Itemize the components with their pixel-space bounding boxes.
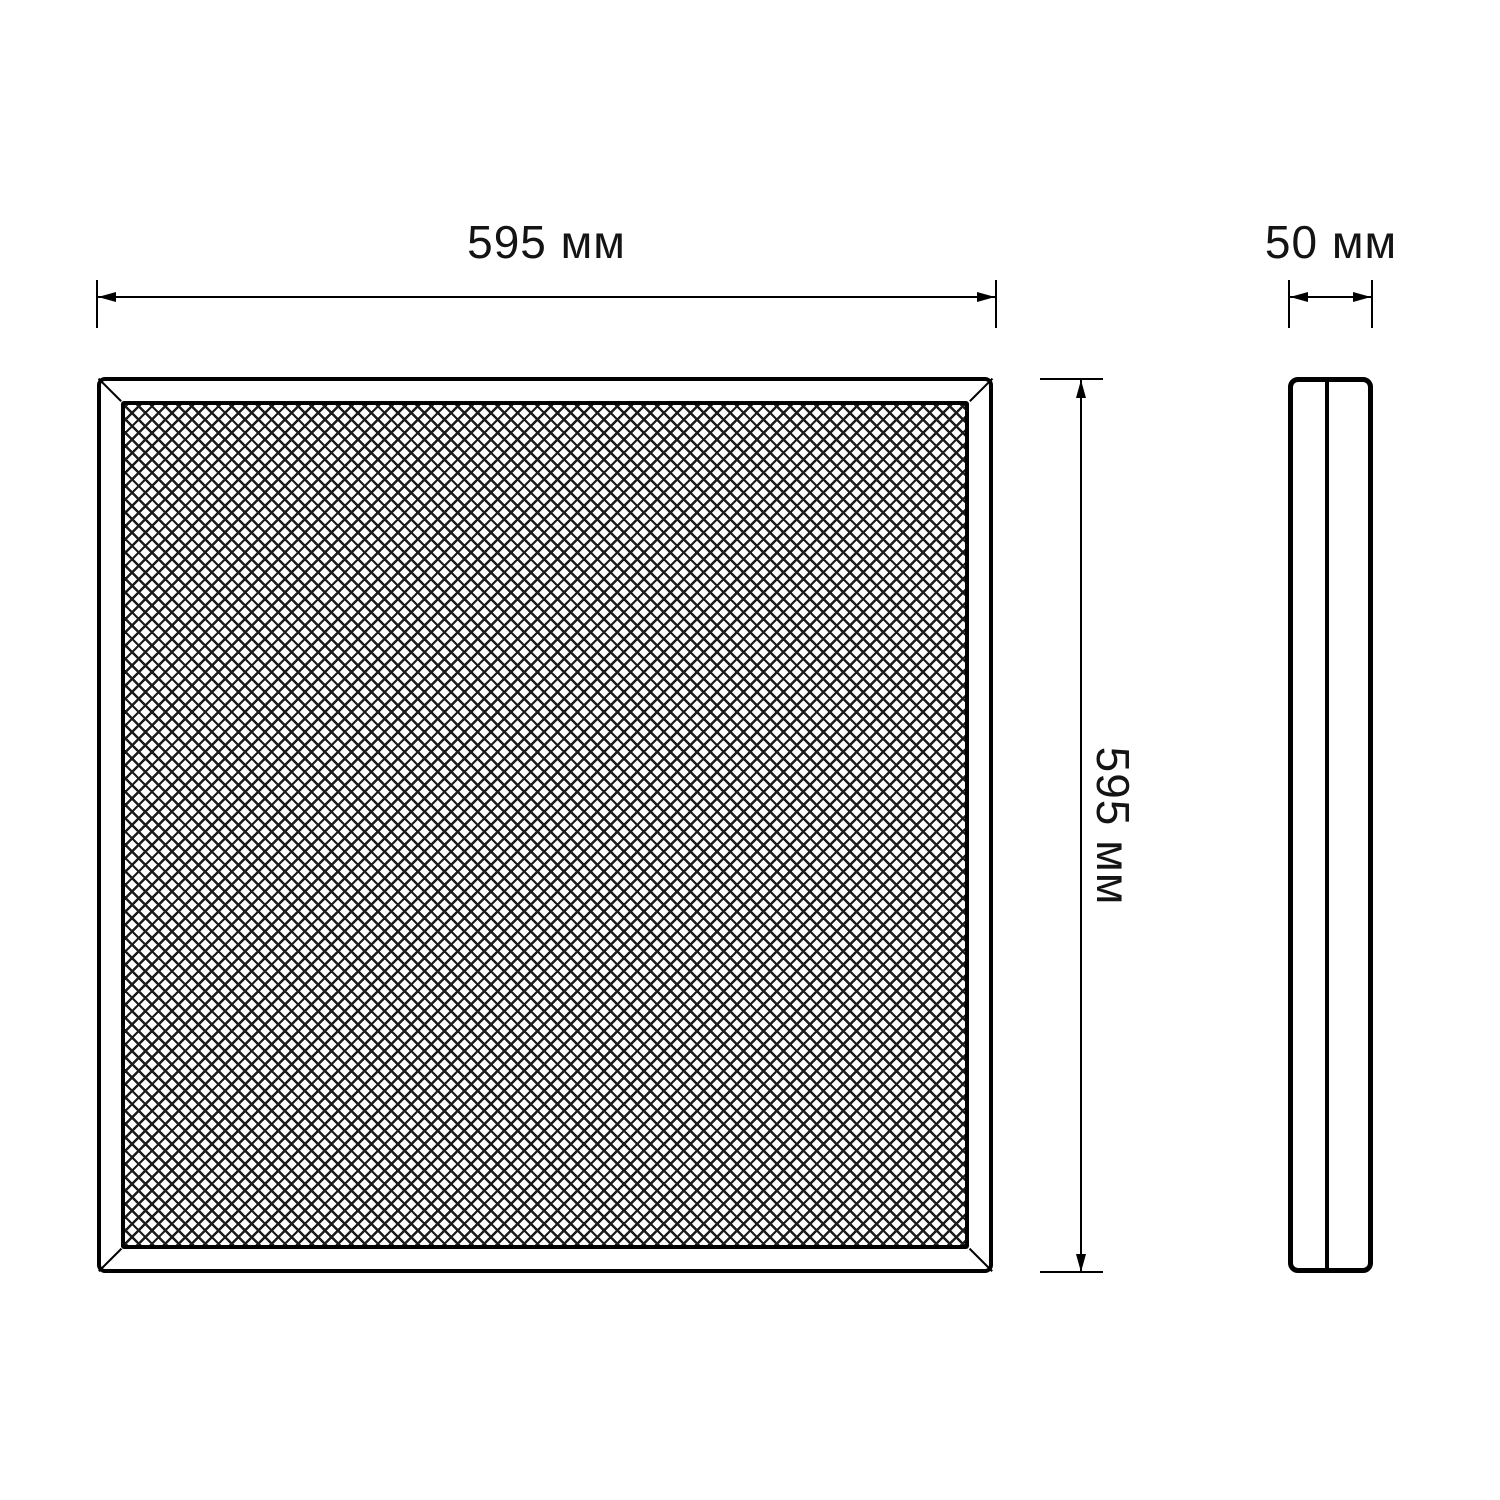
depth-extension-line-left — [1288, 280, 1290, 328]
depth-dimension-label: 50 мм — [1251, 219, 1411, 265]
depth-arrow-left-icon — [1290, 292, 1308, 302]
height-arrow-up-icon — [1076, 380, 1086, 398]
front-view-prismatic-mesh — [121, 401, 969, 1249]
width-dimension-line — [97, 296, 996, 298]
height-extension-line-top — [1040, 378, 1103, 380]
width-extension-line-right — [995, 280, 997, 328]
side-view-divider-line — [1325, 382, 1329, 1268]
height-arrow-down-icon — [1076, 1254, 1086, 1272]
width-arrow-left-icon — [98, 292, 116, 302]
side-view-body — [1288, 377, 1373, 1273]
width-dimension-label: 595 мм — [97, 219, 996, 265]
height-extension-line-bottom — [1040, 1271, 1103, 1273]
depth-arrow-right-icon — [1353, 292, 1371, 302]
drawing-canvas: 595 мм 50 мм 595 мм — [0, 0, 1500, 1500]
height-dimension-line — [1080, 380, 1082, 1272]
height-dimension-label: 595 мм — [1090, 747, 1136, 906]
depth-extension-line-right — [1371, 280, 1373, 328]
width-extension-line-left — [96, 280, 98, 328]
width-arrow-right-icon — [977, 292, 995, 302]
